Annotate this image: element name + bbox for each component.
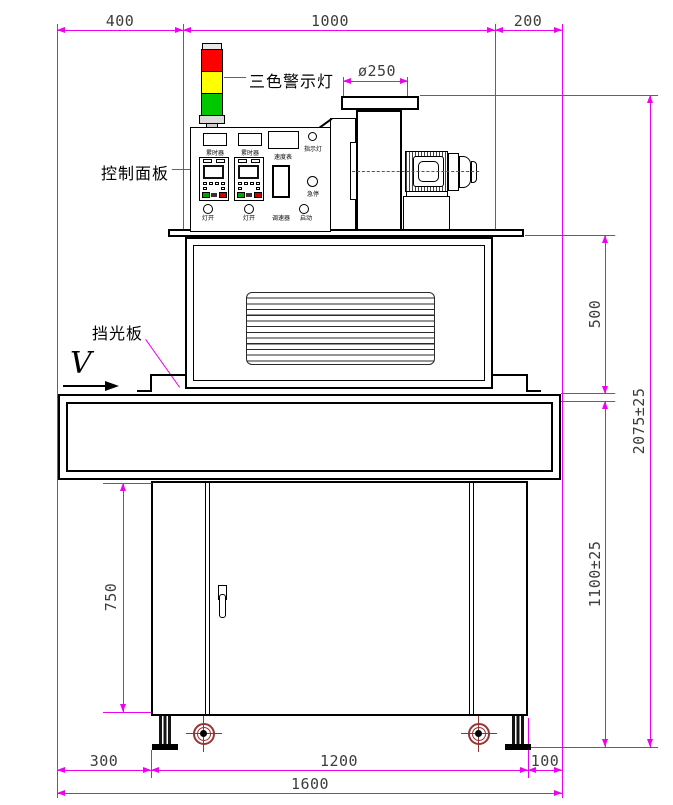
dim-arrow: [602, 739, 608, 747]
dim-text-oven-height: 500: [586, 300, 604, 329]
dim-arrow: [647, 95, 653, 103]
light-shield-right: [526, 390, 541, 392]
cabinet-divider: [469, 483, 470, 714]
uv-lamp-controller-2: [234, 157, 264, 201]
dim-arrow: [602, 386, 608, 394]
light-shield-left: [150, 374, 187, 376]
emergency-stop-button: [307, 176, 318, 187]
ext-line-flange-top: [420, 95, 658, 96]
controller-key: [209, 182, 213, 185]
uv-lamp-controller-1: [199, 157, 229, 201]
callout-warning-light: 三色警示灯: [249, 68, 334, 92]
controller-tab: [238, 159, 247, 163]
dim-line-1000: [183, 30, 495, 31]
controller-key: [256, 182, 260, 185]
controller-run-button: [237, 192, 245, 198]
controller-key: [211, 193, 217, 197]
dim-arrow: [57, 27, 65, 33]
belt-direction-label: V: [70, 346, 92, 381]
conveyor-table-inner: [66, 402, 553, 472]
dim-arrow: [57, 767, 65, 773]
controller-display: [203, 165, 224, 179]
dim-line-1600: [57, 793, 562, 794]
dim-line-1200: [151, 770, 528, 771]
hour-meter-2-label: 累时器: [241, 148, 259, 157]
cabinet-divider: [209, 483, 210, 714]
start-button-label: 启动: [300, 213, 312, 222]
controller-key: [246, 193, 252, 197]
dim-text-flange-diameter: ø250: [358, 62, 396, 80]
motor-pedestal: [403, 196, 450, 232]
dim-text-100: 100: [531, 752, 560, 770]
speed-regulator-knob: [272, 165, 290, 198]
oven-louver-vent: [246, 292, 435, 365]
warning-lamp-red: [201, 49, 223, 72]
motor-endcap: [448, 153, 459, 191]
motor-shaft-tip: [471, 161, 477, 183]
ext-line-oven-left: [183, 24, 184, 229]
light-shield-right: [491, 374, 528, 376]
ext-line-cabinet-bottom: [103, 712, 151, 713]
emergency-stop-label: 急停: [307, 189, 319, 198]
caster-wheel-right-hub: [475, 730, 482, 737]
dim-arrow: [520, 767, 528, 773]
dim-arrow: [602, 235, 608, 243]
dim-arrow: [120, 704, 126, 712]
controller-stop-button: [254, 192, 262, 198]
controller-key: [250, 182, 254, 185]
callout-control-panel: 控制面板: [101, 160, 169, 184]
dim-arrow: [554, 27, 562, 33]
dim-arrow: [175, 27, 183, 33]
ext-line-cabinet-left: [151, 750, 152, 778]
dim-arrow: [554, 790, 562, 796]
controller-key: [238, 187, 242, 190]
dim-text-overall-height: 2075±25: [630, 388, 648, 455]
belt-direction-arrow-head: [105, 381, 119, 391]
controller-tab: [203, 159, 212, 163]
lamp-switch-1-label: 灯开: [202, 213, 214, 222]
caster-wheel-left-hub: [200, 730, 207, 737]
leveling-foot-left: [159, 716, 171, 744]
controller-key: [244, 182, 248, 185]
controller-run-button: [202, 192, 210, 198]
dim-arrow: [183, 27, 191, 33]
dim-text-1600: 1600: [291, 775, 329, 793]
ext-line-ground: [528, 747, 658, 748]
ext-line-cabinet-top: [103, 483, 151, 484]
controller-stop-button: [219, 192, 227, 198]
controller-tab: [251, 159, 260, 163]
leveling-foot-left-pad: [152, 744, 178, 750]
controller-key: [203, 187, 207, 190]
dim-line-400: [57, 30, 183, 31]
dim-arrow: [647, 739, 653, 747]
motor-centerline: [352, 171, 479, 172]
dim-line-1100: [605, 401, 606, 747]
indicator-lamp-label: 指示灯: [304, 144, 322, 153]
controller-key: [203, 182, 207, 185]
motor-endcap-taper: [459, 156, 471, 188]
dim-arrow: [495, 27, 503, 33]
controller-tab: [216, 159, 225, 163]
controller-key: [221, 182, 225, 185]
speed-regulator-label: 调速器: [272, 213, 290, 222]
dim-line-200: [495, 30, 562, 31]
dim-line-500: [605, 235, 606, 394]
dim-arrow: [343, 78, 351, 84]
dim-arrow: [143, 767, 151, 773]
dim-line-flange: [343, 81, 408, 82]
controller-key: [215, 182, 219, 185]
dim-line-2075: [650, 95, 651, 747]
dim-arrow: [487, 27, 495, 33]
ext-line-oven-right: [495, 24, 496, 229]
hour-meter-1-window: [203, 133, 227, 146]
dim-text-work-height: 1100±25: [586, 541, 604, 608]
cabinet-divider: [473, 483, 474, 714]
dim-line-750: [123, 483, 124, 712]
dim-text-cabinet-height: 750: [102, 583, 120, 612]
hour-meter-1-label: 累时器: [206, 148, 224, 157]
dim-arrow: [400, 78, 408, 84]
hour-meter-2-window: [238, 133, 262, 146]
dim-arrow: [602, 401, 608, 409]
speed-meter-label: 速度表: [274, 152, 292, 161]
light-shield-left: [137, 390, 152, 392]
controller-display: [238, 165, 259, 179]
indicator-lamp: [308, 132, 317, 141]
controller-key: [238, 182, 242, 185]
controller-key: [221, 187, 225, 190]
leveling-foot-right-pad: [505, 744, 531, 750]
cabinet-divider: [205, 483, 206, 714]
ext-line-right: [562, 24, 563, 798]
warning-lamp-yellow: [201, 71, 223, 94]
controller-key: [256, 187, 260, 190]
dim-text-1200: 1200: [320, 752, 358, 770]
cabinet: [151, 481, 528, 716]
dim-line-300: [57, 770, 151, 771]
leader-warning-light: [224, 77, 246, 78]
lamp-switch-2-label: 灯开: [243, 213, 255, 222]
dim-text-1000: 1000: [311, 12, 349, 30]
cabinet-door-handle-slot: [219, 594, 226, 618]
dim-text-200: 200: [514, 12, 543, 30]
leveling-foot-right: [512, 716, 524, 744]
dim-text-300: 300: [90, 752, 119, 770]
dim-text-400: 400: [106, 12, 135, 30]
warning-lamp-green: [201, 93, 223, 116]
dim-arrow: [151, 767, 159, 773]
uv-machine-engineering-drawing: 400 1000 200 ø250 2075±25 500 1100±25 75…: [0, 0, 673, 805]
callout-light-shield: 挡光板: [92, 320, 143, 344]
speed-meter-window: [268, 131, 299, 149]
dim-arrow: [120, 483, 126, 491]
dim-arrow: [57, 790, 65, 796]
blower-flange: [341, 96, 419, 110]
belt-direction-arrow-shaft: [63, 385, 107, 387]
